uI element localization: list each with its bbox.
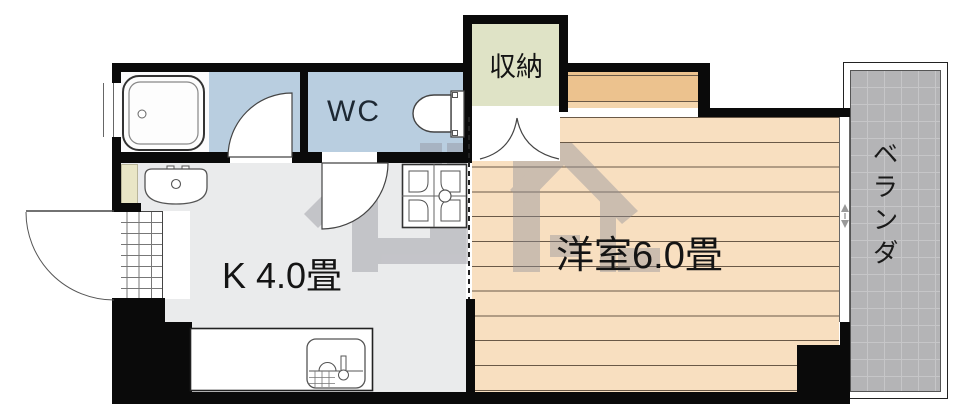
kitchen-sink-icon [307, 339, 365, 388]
floor-plan: WC 収納 K 4.0畳 洋室6.0畳 ベランダ [0, 0, 960, 415]
sliding-direction-arrows-icon [841, 204, 849, 228]
washroom-door-swing [228, 93, 292, 157]
entrance-door-swing [26, 211, 114, 300]
kitchen-label: K 4.0畳 [222, 247, 342, 299]
storage-label: 収納 [472, 45, 560, 84]
toilet-icon [413, 91, 464, 137]
washbasin-icon [145, 166, 207, 204]
western-room-label: 洋室6.0畳 [556, 224, 723, 279]
bathtub-icon [123, 76, 204, 150]
wc-door-swing [322, 163, 388, 229]
washing-machine-pan-icon [402, 164, 467, 228]
veranda-label: ベランダ [866, 140, 903, 272]
closet-double-doors [480, 118, 559, 159]
wc-label: WC [327, 95, 381, 129]
